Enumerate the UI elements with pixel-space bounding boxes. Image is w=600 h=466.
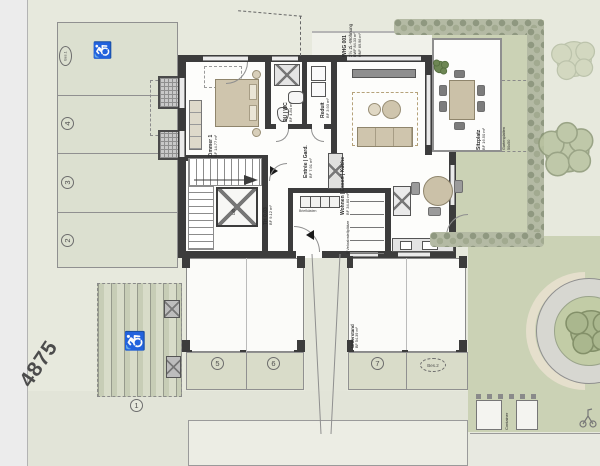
tree-icon (543, 20, 600, 98)
hedge-north (394, 19, 544, 35)
nightstand (252, 128, 261, 137)
potted-plant-icon (430, 54, 452, 80)
site-plan-canvas: Bes.1 ♿ 4 3 2 4875 ♿ 1 (0, 0, 600, 466)
nightstand (252, 70, 261, 79)
lift-label: Lift (231, 209, 236, 215)
roof-overhang (312, 33, 432, 55)
label-unterstand: Unterstand BF 54.39 m² (350, 324, 360, 348)
tree-icon (552, 292, 600, 370)
shower (274, 64, 300, 86)
wall-bikeroom-east (385, 188, 391, 258)
window (203, 56, 248, 61)
kitchen-tall-unit (393, 186, 411, 216)
container-label: Container (505, 413, 510, 430)
stall-divider (246, 352, 247, 390)
parking-stall-bes2-text: Bes.2 (427, 363, 439, 368)
parking-stall-2-label: 2 (61, 234, 74, 247)
carport-divider (246, 258, 247, 352)
parking-stall-3-label: 3 (61, 176, 74, 189)
bike-racks (350, 194, 384, 254)
wardrobe (189, 100, 202, 150)
parking-stall-5-label: 5 (211, 357, 224, 370)
terrace-table (449, 80, 475, 120)
chair (439, 85, 447, 96)
mailboxes (300, 196, 340, 208)
utility-box (166, 356, 181, 378)
unit-info-label: WHG 001 2½ Zi.-Wohnung BWF 84.33 m² HNF … (342, 24, 362, 57)
room-label-treppenhaus: TH 0.03 BF 9.12 m² (263, 205, 274, 225)
dryer (311, 82, 326, 97)
window (179, 131, 185, 157)
stall-divider (406, 352, 407, 390)
mailbox-cell (311, 196, 321, 208)
stair-direction-arrow (190, 160, 262, 186)
street-left (0, 0, 28, 466)
utility-box (164, 300, 180, 318)
container-pad-edge (476, 394, 540, 399)
chair (428, 207, 441, 216)
window (179, 78, 185, 108)
container-box (516, 400, 538, 430)
lightwell (158, 130, 180, 160)
road-southeast (470, 433, 600, 466)
carport-post (182, 256, 190, 268)
lightwell (158, 76, 180, 109)
wheelchair-icon: ♿ (96, 40, 112, 60)
hedge-south (430, 232, 544, 247)
carport-bay-west (186, 258, 304, 352)
wall-reduit-living (331, 62, 337, 155)
room-label-sitzplatz: Sitzplatz BF 16.50 m² (476, 128, 487, 150)
chair (454, 70, 465, 78)
tree-icon (528, 105, 600, 195)
chair (454, 180, 463, 193)
parking-stall-7-label: 7 (371, 357, 384, 370)
parking-stall-bes1-text: Bes.1 (63, 51, 67, 60)
mailbox-cell (321, 196, 331, 208)
pillow (249, 84, 257, 100)
parking-stall-bes1-label: Bes.1 (59, 46, 72, 66)
patio-table (423, 176, 453, 206)
parking-strip-south-east (348, 352, 468, 390)
chair (454, 122, 465, 130)
room-label-reduit: Reduit BF 3.93 m² (320, 98, 331, 118)
coffee-table (368, 103, 381, 116)
window (272, 56, 298, 61)
chair (477, 85, 485, 96)
mailboxes-label: Briefkästen (299, 209, 317, 213)
unit-boundary-line (300, 16, 301, 56)
wall-bikeroom-west (288, 188, 293, 258)
ramp-lines (304, 252, 348, 436)
sideboard (352, 69, 416, 78)
chair (477, 101, 485, 112)
parking-stall-1-label: 1 (130, 399, 143, 412)
mailbox-cell (330, 196, 340, 208)
room-label-zimmer1: Zimmer 1 BF 14.77 m² (208, 135, 219, 157)
parking-stall-4-label: 4 (61, 117, 74, 130)
chair (439, 101, 447, 112)
wheelchair-icon: ♿ (126, 330, 144, 352)
mailbox-cell (300, 196, 311, 208)
chair (411, 182, 420, 195)
carport-bay-east (348, 258, 466, 352)
kitchen-sink (400, 241, 412, 250)
parking-strip-south-west (186, 352, 304, 390)
container-box (476, 400, 502, 430)
label-garden-path: Gartenplatten 50x50 (502, 127, 511, 150)
room-label-wohnen: Wohnen | Essen | Küche BF 34.80 m² (340, 157, 351, 215)
lift (216, 187, 258, 227)
wall-zimmer1-bath (265, 62, 271, 128)
sofa (357, 127, 413, 147)
window-terrace-door (426, 75, 431, 145)
parking-stall-6-label: 6 (267, 357, 280, 370)
pillow (249, 105, 257, 121)
scooter-icon (578, 404, 598, 430)
bike-room-label: 5 Veloabstellplätze (346, 221, 351, 254)
washer (311, 66, 326, 81)
unit-boundary-line (238, 10, 302, 17)
room-label-duwc: DU | WC BF 4.84 m² (283, 102, 294, 122)
stall-divider (57, 212, 178, 213)
parking-stall-bes2-label: Bes.2 (420, 358, 446, 372)
stairs-west-flight (188, 186, 214, 250)
coffee-table (382, 100, 401, 119)
entrance-arrow-icon (306, 230, 314, 240)
carport-post (459, 256, 467, 268)
room-label-entree: Entrée | Gard. BF 7.91 m² (303, 145, 314, 178)
window (398, 252, 430, 257)
carport-divider (406, 258, 407, 352)
